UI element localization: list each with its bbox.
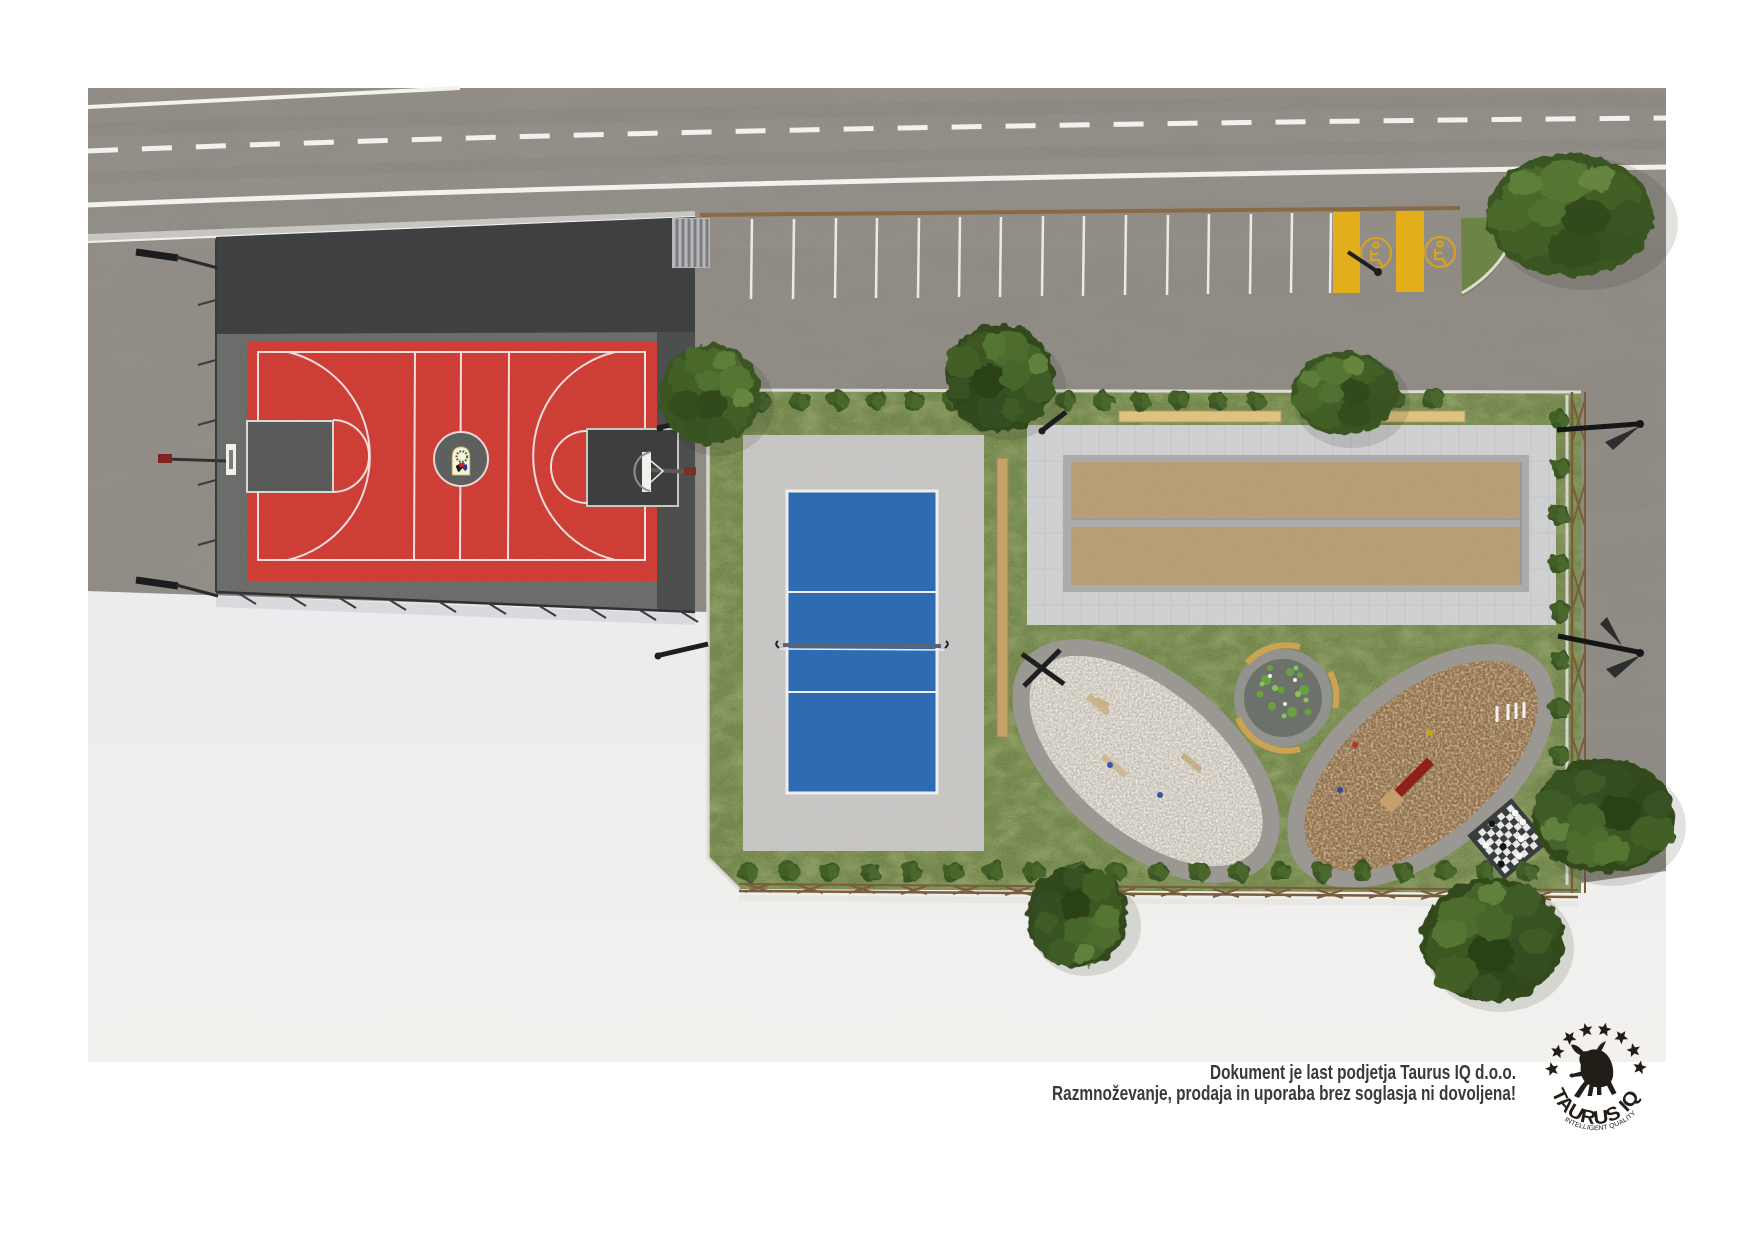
svg-text:Dokument je last podjetja Taur: Dokument je last podjetja Taurus IQ d.o.… <box>1210 1062 1516 1084</box>
svg-text:Razmnoževanje, prodaja in upor: Razmnoževanje, prodaja in uporaba brez s… <box>1052 1083 1516 1105</box>
